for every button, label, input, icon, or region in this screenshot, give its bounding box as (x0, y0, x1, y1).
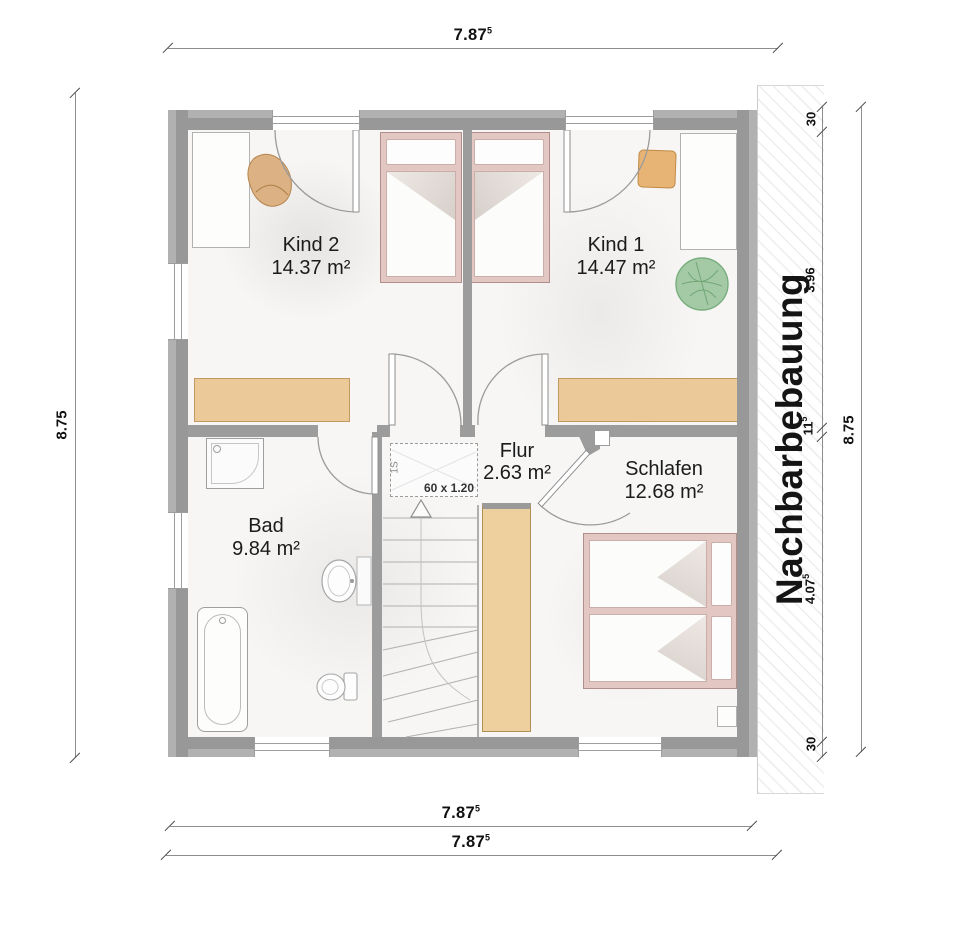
room-label-kind2: Kind 2 14.37 m² (272, 234, 351, 280)
dim-label-bottom-outer: 7.875 (452, 833, 491, 852)
room-label-schlafen: Schlafen 12.68 m² (625, 458, 704, 504)
shower-bad (206, 438, 264, 489)
dim-line-bottom-outer (166, 855, 777, 856)
room-name: Schlafen (625, 458, 704, 481)
bed-schlafen-mattress-2 (589, 614, 707, 682)
room-name: Flur (483, 440, 551, 462)
window-bad-west (168, 512, 188, 589)
wall-exterior-left (168, 110, 188, 757)
sideboard-kind1 (558, 378, 738, 422)
room-area: 14.37 m² (272, 257, 351, 280)
shower-drain (213, 445, 221, 453)
wall-exterior-top (168, 110, 757, 130)
window-kind2-west (168, 263, 188, 340)
desk-kind2 (194, 378, 350, 422)
dim-line-bottom-inner (170, 826, 752, 827)
window-schlafen-south (578, 737, 662, 757)
dim-label-left: 8.75 (54, 410, 71, 439)
dim-label-top: 7.875 (454, 26, 493, 45)
neighbor-label: Nachbarbebauung (769, 272, 811, 604)
window-balcony-kind1 (565, 110, 654, 130)
room-area: 12.68 m² (625, 481, 704, 504)
wardrobe-schlafen (482, 503, 531, 732)
wall-kind1-kind2 (463, 130, 472, 432)
bed-kind2-mattress (386, 171, 456, 277)
desk-white-kind1 (680, 133, 737, 250)
room-area: 2.63 m² (483, 462, 551, 484)
bed-kind1-mattress (474, 171, 544, 277)
nightstand-schlafen (717, 706, 737, 727)
room-name: Kind 2 (272, 234, 351, 257)
wardrobe-kind2 (192, 132, 250, 248)
dim-label-bottom-inner: 7.875 (442, 804, 481, 823)
skylight-id-label: 1S (390, 461, 401, 473)
bathtub-faucet (219, 617, 226, 624)
bathtub-basin (204, 614, 241, 725)
wall-stairwell-west (372, 432, 382, 737)
dim-line-top (168, 48, 778, 49)
blanket-fold (387, 172, 455, 220)
dim-line-right-outer (861, 107, 862, 752)
room-area: 14.47 m² (577, 257, 656, 280)
door-post-schlafen (594, 430, 610, 446)
window-balcony-kind2 (272, 110, 360, 130)
wall-schlafen-north (545, 425, 737, 437)
blanket-fold (657, 615, 706, 681)
wall-stub-center (460, 425, 475, 437)
dim-line-left (75, 93, 76, 758)
bed-schlafen-mattress-1 (589, 540, 707, 608)
room-name: Kind 1 (577, 234, 656, 257)
blanket-fold (475, 172, 543, 220)
room-area: 9.84 m² (232, 538, 300, 561)
floor-plan-canvas: Nachbarbebauung 60 x 1.20 1S (0, 0, 960, 928)
bed-kind2-pillow (386, 139, 456, 165)
skylight-size-label: 60 x 1.20 (424, 481, 474, 495)
room-label-flur: Flur 2.63 m² (483, 440, 551, 484)
dim-label-right-outer: 8.75 (841, 415, 858, 444)
neighbor-label-wrap: Nachbarbebauung (758, 85, 822, 792)
blanket-fold (657, 541, 706, 607)
bed-schlafen-pillow-2 (711, 616, 732, 680)
stool-kind1 (637, 149, 676, 188)
skylight-flur: 60 x 1.20 1S (390, 443, 478, 497)
bathtub-bad (197, 607, 248, 732)
bed-schlafen-pillow-1 (711, 542, 732, 606)
wall-bad-north (188, 425, 318, 437)
room-label-bad: Bad 9.84 m² (232, 515, 300, 561)
room-label-kind1: Kind 1 14.47 m² (577, 234, 656, 280)
bed-kind1-pillow (474, 139, 544, 165)
window-bad-south (254, 737, 330, 757)
wall-exterior-right (737, 110, 757, 757)
room-name: Bad (232, 515, 300, 538)
dim-line-right-inner (822, 107, 823, 757)
